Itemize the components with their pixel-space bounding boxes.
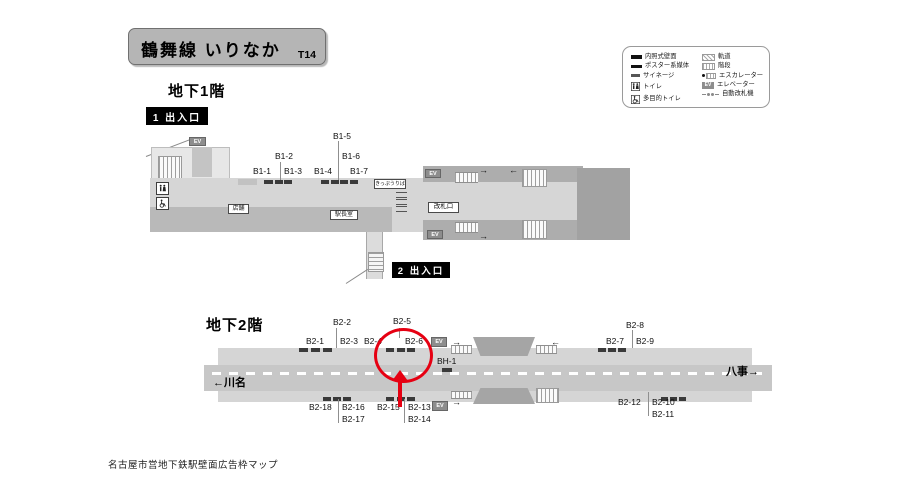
exit-1-badge: 1 出入口	[146, 107, 208, 125]
station-title: 鶴舞線 いりなか	[141, 36, 281, 61]
ad-slot-b2-2	[311, 348, 320, 352]
arrow-right-icon: →	[479, 166, 488, 175]
legend-item-escalator: エスカレーター	[702, 73, 763, 79]
ad-label-b1-1: B1-1	[253, 167, 271, 176]
b1-lower-stair-zone	[423, 220, 583, 240]
b1-concourse-free	[150, 178, 583, 207]
ticket-gate-icon	[396, 206, 407, 212]
legend-label: 自動改札機	[722, 91, 753, 97]
ad-slot-b2-18	[343, 397, 351, 401]
legend-box: 内照式壁面 ポスター系媒体 サイネージ トイレ	[622, 46, 770, 108]
ad-label-b2-3: B2-3	[340, 337, 358, 346]
ad-label-b2-2: B2-2	[333, 318, 351, 327]
ticket-office-sign: きっぷうりば	[374, 179, 406, 189]
ticket-gate-icon	[702, 93, 719, 96]
elevator-icon: EV	[432, 401, 448, 411]
ad-slot-b2-16	[323, 397, 331, 401]
floor2-heading: 地下2階	[206, 314, 263, 335]
stairs-enclosure	[473, 388, 535, 404]
stairs	[522, 169, 547, 187]
leader-line	[338, 399, 339, 423]
legend-label: 軌道	[718, 54, 731, 60]
track-icon	[702, 54, 715, 61]
legend-item-poster: ポスター系媒体	[631, 63, 689, 69]
exit-2-badge: 2 出入口	[392, 262, 450, 278]
leader-line	[280, 162, 281, 180]
leader-line	[338, 141, 339, 180]
ad-slot-b1-6	[340, 180, 348, 184]
accessible-toilet-icon	[156, 197, 169, 210]
legend-left-column: 内照式壁面 ポスター系媒体 サイネージ トイレ	[631, 54, 689, 104]
ad-slot-b2-1	[299, 348, 308, 352]
legend-item-elevator: EV エレベーター	[702, 82, 763, 88]
exit-2-ground-line	[346, 269, 368, 284]
ad-slot-b2-3	[323, 348, 332, 352]
ad-label-b1-2: B1-2	[275, 152, 293, 161]
ad-label-b2-9: B2-9	[636, 337, 654, 346]
ad-label-b2-18: B2-18	[309, 403, 332, 412]
ad-label-b2-7: B2-7	[606, 337, 624, 346]
b1-upper-stair-zone	[423, 166, 583, 182]
stairs	[536, 388, 559, 403]
legend-label: 内照式壁面	[645, 54, 676, 60]
ticket-gate-icon	[396, 199, 407, 205]
legend-label: トイレ	[643, 84, 662, 90]
accessible-toilet-icon	[631, 95, 640, 104]
ad-slot-b2-9	[618, 348, 626, 352]
elevator-icon: EV	[189, 137, 206, 146]
arrow-right-icon: →	[479, 232, 488, 241]
station-title-box: 鶴舞線 いりなか T14	[128, 28, 326, 65]
ad-label-b2-15: B2-15	[377, 403, 400, 412]
escalator-icon	[702, 73, 716, 79]
arrow-right-icon: →	[452, 398, 461, 407]
highlight-arrow-shaft	[398, 380, 402, 407]
direction-kawana: ←川名	[213, 374, 246, 390]
leader-line	[336, 328, 337, 348]
ad-slot-b1-3	[284, 180, 292, 184]
legend-item-stairs: 階段	[702, 63, 763, 69]
floor1-heading: 地下1階	[168, 80, 225, 101]
legend-item-accessible-toilet: 多目的トイレ	[631, 95, 689, 104]
store-room-label: 店舗	[228, 204, 249, 214]
ad-label-b1-3: B1-3	[284, 167, 302, 176]
stairs-enclosure	[473, 337, 535, 356]
ad-slot-b1-7	[350, 180, 358, 184]
ad-label-b2-5: B2-5	[393, 317, 411, 326]
ad-slot-b2-15	[386, 397, 394, 401]
ad-label-b2-11: B2-11	[652, 410, 674, 419]
ad-label-b1-6: B1-6	[342, 152, 360, 161]
legend-label: 多目的トイレ	[643, 96, 681, 102]
arrow-right-icon: →	[452, 338, 461, 347]
escalator	[455, 222, 478, 233]
arrow-left-icon: ←	[551, 338, 560, 347]
direction-yagoto: 八事→	[726, 363, 759, 379]
ad-slot-b1-4	[321, 180, 329, 184]
leader-line	[404, 399, 405, 423]
ad-label-b1-4: B1-4	[314, 167, 332, 176]
ad-label-b2-16: B2-16	[342, 403, 365, 412]
stairs-icon	[702, 63, 715, 70]
toilet-icon	[631, 82, 640, 91]
ad-label-b1-7: B1-7	[350, 167, 368, 176]
ad-label-b2-8: B2-8	[626, 321, 644, 330]
lit-wall-panel-icon	[631, 55, 642, 59]
exit-2-stairs	[368, 252, 384, 272]
escalator	[455, 172, 478, 183]
toilet-icon	[156, 182, 169, 195]
ad-slot-b2-7	[598, 348, 606, 352]
legend-item-signage: サイネージ	[631, 73, 689, 79]
arrow-left-icon: ←	[509, 166, 518, 175]
legend-label: エレベーター	[717, 82, 755, 88]
leader-line	[648, 392, 649, 416]
track-centerline	[212, 372, 762, 375]
station-code: T14	[298, 49, 316, 61]
elevator-icon: EV	[702, 82, 714, 89]
ad-slot-b1-1	[264, 180, 273, 184]
station-ad-map-page: 鶴舞線 いりなか T14 内照式壁面 ポスター系媒体 サイネージ	[0, 0, 919, 491]
elevator-icon: EV	[431, 337, 447, 347]
ad-slot-b2-14	[407, 397, 415, 401]
station-master-office-label: 駅長室	[330, 210, 358, 220]
legend-label: エスカレーター	[719, 73, 763, 79]
elevator-icon: EV	[427, 230, 443, 239]
ad-label-bh-1: BH-1	[437, 357, 456, 366]
ad-slot-b1-5	[331, 180, 339, 184]
b2-track-band	[204, 365, 772, 391]
ad-label-b2-1: B2-1	[306, 337, 324, 346]
b1-right-stairwell-block	[577, 168, 630, 240]
ad-slot-b2-8	[608, 348, 616, 352]
ad-label-b2-12: B2-12	[618, 398, 641, 407]
ad-label-b2-13: B2-13	[408, 403, 431, 412]
entrance-1-elevator-shaft	[192, 147, 212, 177]
legend-right-column: 軌道 階段 エスカレーター EV エレベーター 自動	[702, 54, 763, 98]
footer-note: 名古屋市営地下鉄駅壁面広告枠マップ	[108, 457, 278, 471]
ad-label-b2-10: B2-10	[652, 398, 675, 407]
ad-slot-b2-17	[333, 397, 341, 401]
legend-item-toilet: トイレ	[631, 82, 689, 91]
ad-slot-bh-1	[442, 368, 452, 372]
b1-wall-kiosk	[238, 179, 257, 185]
ad-slot-b2-11	[679, 397, 686, 401]
poster-media-icon	[631, 65, 642, 69]
ad-label-b2-14: B2-14	[408, 415, 431, 424]
ticket-gate-sign: 改札口	[428, 202, 459, 213]
leader-line	[632, 330, 633, 348]
legend-item-lit-wall: 内照式壁面	[631, 54, 689, 60]
ticket-gate-icon	[396, 192, 407, 198]
stairs	[522, 220, 547, 239]
signage-icon	[631, 74, 640, 77]
ad-label-b1-5: B1-5	[333, 132, 351, 141]
ad-slot-b1-2	[275, 180, 283, 184]
legend-label: サイネージ	[643, 73, 674, 79]
legend-item-ticket-gate: 自動改札機	[702, 92, 763, 98]
ad-label-b2-17: B2-17	[342, 415, 365, 424]
legend-label: ポスター系媒体	[645, 63, 689, 69]
elevator-icon: EV	[425, 169, 441, 178]
legend-label: 階段	[718, 63, 731, 69]
legend-item-track: 軌道	[702, 54, 763, 60]
